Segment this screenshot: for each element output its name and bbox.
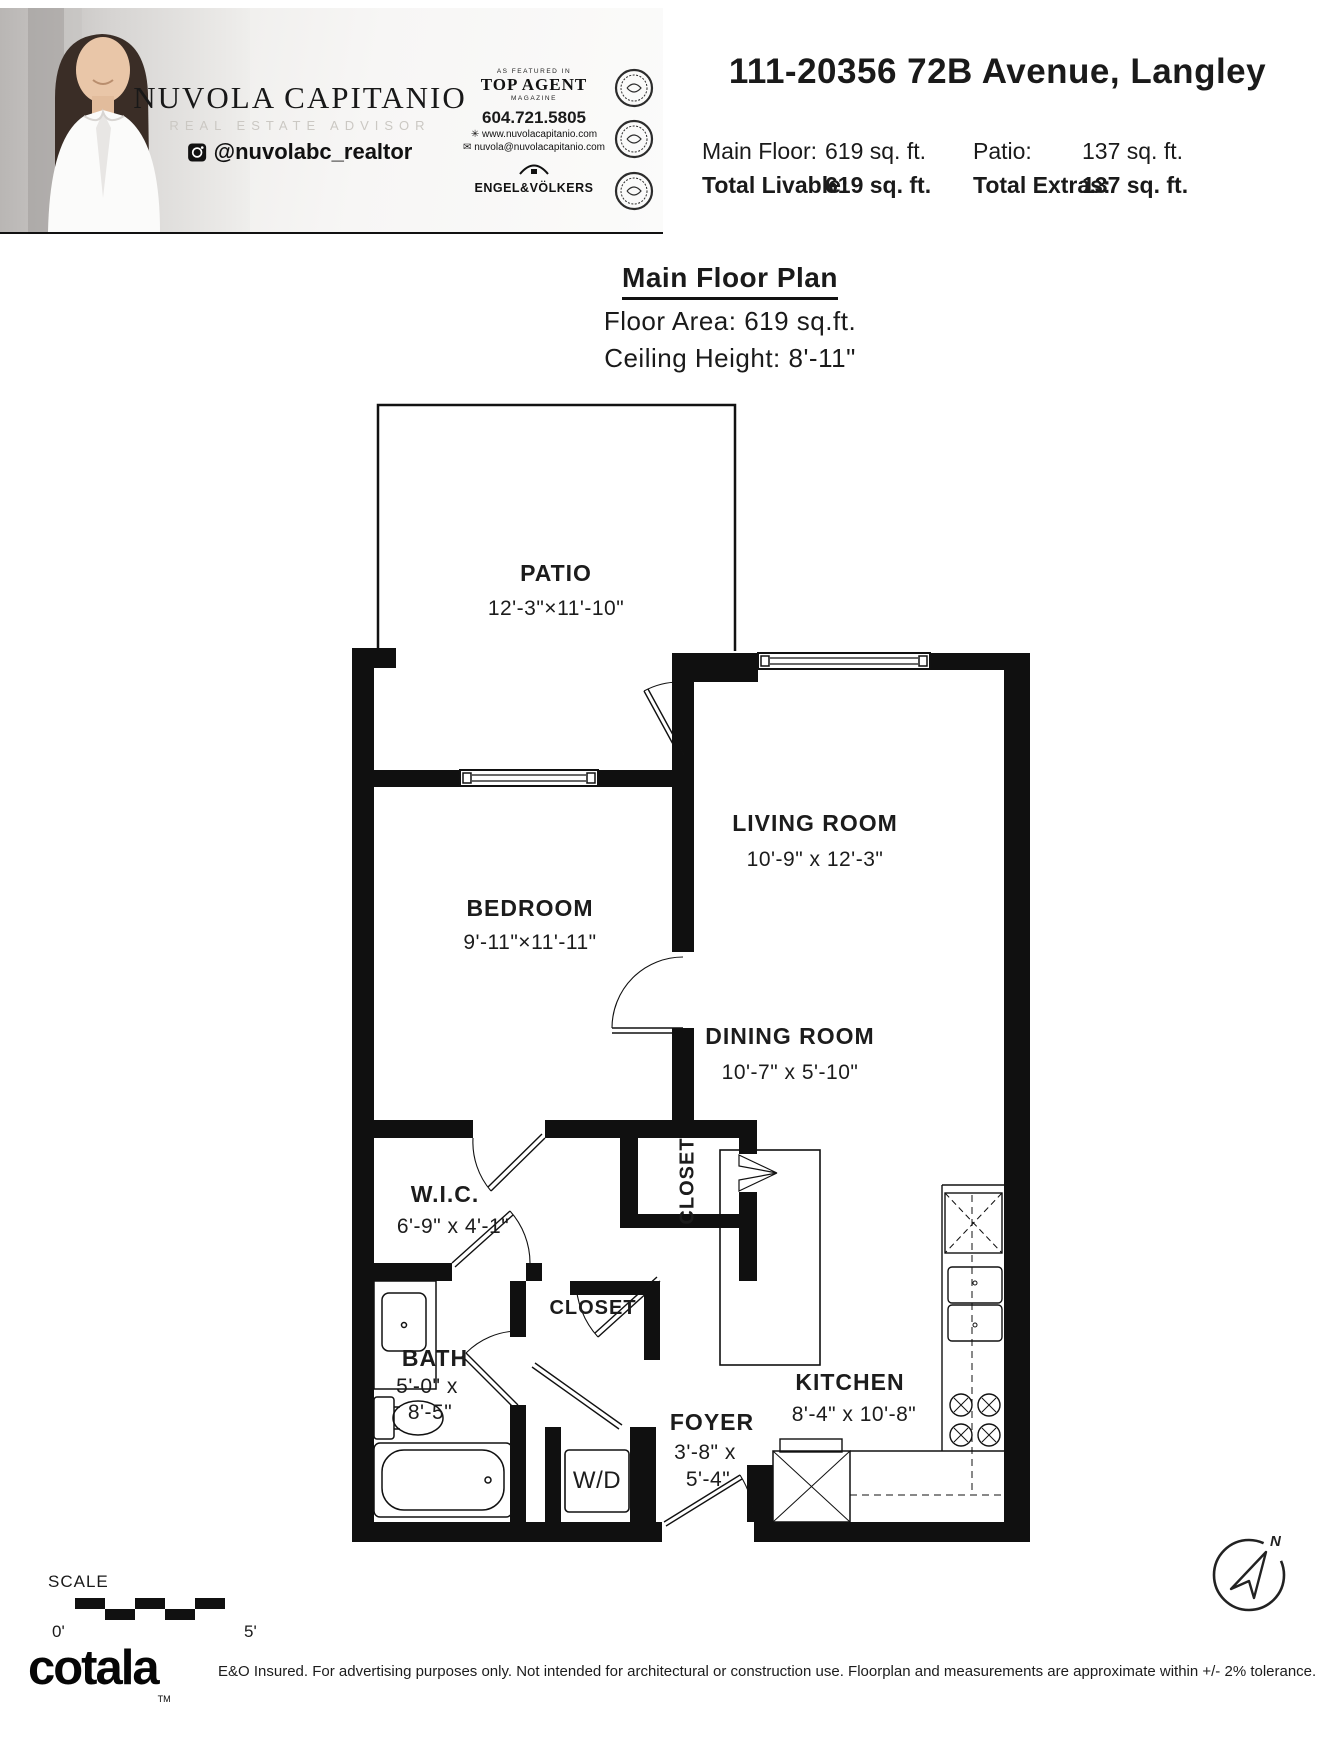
bath-fixtures [374,1281,512,1517]
badge-top-text: AS FEATURED IN [455,68,613,75]
oven-knob-2 [973,1323,977,1327]
room-label-patio: PATIO [520,560,592,587]
north-compass: N [1204,1528,1296,1620]
oven-knob-1 [973,1281,977,1285]
stat-total-extras-value: 137 sq. ft. [1082,172,1188,199]
stat-main-floor-value: 619 sq. ft. [825,138,926,165]
toilet-tank [374,1397,394,1439]
brokerage-name: ENGEL&VÖLKERS [455,181,613,195]
fridge-x [945,1193,1002,1253]
floor-plan: PATIO 12'-3"×11'-10" LIVING ROOM 10'-9" … [330,395,1030,1555]
agent-banner: NUVOLA CAPITANIO REAL ESTATE ADVISOR @nu… [0,8,663,234]
room-dims-dining: 10'-7" x 5'-10" [722,1061,859,1085]
closet1-bifold-door [739,1155,777,1191]
trademark-symbol: TM [158,1694,171,1704]
room-label-kitchen: KITCHEN [795,1369,904,1396]
agent-phone: 604.721.5805 [455,108,613,128]
bath-door-leaf [462,1353,518,1408]
stat-patio-value: 137 sq. ft. [1082,138,1183,165]
engel-volkers-icon [517,163,551,176]
agent-instagram-handle: @nuvolabc_realtor [214,139,413,165]
room-label-dining: DINING ROOM [705,1023,874,1050]
floor-area-line: Floor Area: 619 sq.ft. [520,306,940,337]
globe-icon: ✳ [471,129,479,140]
room-label-closet1: CLOSET [677,1137,700,1224]
plan-title: Main Floor Plan [622,262,838,300]
property-address: 111-20356 72B Avenue, Langley [655,52,1340,92]
room-dims-bedroom: 9'-11"×11'-11" [463,931,596,955]
room-label-wd: W/D [573,1467,621,1495]
agent-website: ✳ www.nuvolacapitanio.com [455,129,613,141]
room-dims-kitchen: 8'-4" x 10'-8" [792,1403,916,1427]
hall-wic-door-arc [510,1211,530,1263]
agent-name: NUVOLA CAPITANIO [133,80,466,116]
agent-email: ✉ nuvola@nuvolacapitanio.com [455,142,613,154]
walls [352,648,1030,1542]
room-label-foyer: FOYER [670,1409,754,1436]
top-agent-badge: TOP AGENT [455,75,613,95]
room-label-bath: BATH [402,1345,468,1372]
contact-block: AS FEATURED IN TOP AGENT MAGAZINE 604.72… [455,68,613,196]
scale-end: 5' [244,1622,257,1642]
disclaimer-text: E&O Insured. For advertising purposes on… [218,1663,1333,1680]
window-living [758,653,930,669]
upper-cabinet-dashed [850,1195,1004,1495]
wic-door-leaf [488,1134,545,1191]
window-bedroom [460,770,598,786]
agent-instagram: @nuvolabc_realtor [188,139,413,165]
room-dims-bath-1: 5'-0" x [396,1375,458,1399]
hall-door-leaf [532,1363,622,1429]
stat-patio-label: Patio: [973,138,1032,165]
north-arrow-icon [1231,1552,1266,1598]
agent-role: REAL ESTATE ADVISOR [169,118,430,133]
room-dims-wic: 6'-9" x 4'-1" [397,1215,509,1239]
email-icon: ✉ [463,142,471,153]
room-label-wic: W.I.C. [411,1181,480,1208]
badge-bottom-text: MAGAZINE [455,95,613,102]
doors [452,682,777,1526]
flyer-page: NUVOLA CAPITANIO REAL ESTATE ADVISOR @nu… [0,0,1344,1753]
award-seal-icons [608,66,660,216]
scale-label: SCALE [48,1572,268,1592]
room-dims-patio: 12'-3"×11'-10" [488,597,624,621]
room-label-living: LIVING ROOM [732,810,898,837]
room-label-closet2: CLOSET [549,1297,636,1320]
bedroom-door-arc [612,957,683,1028]
room-label-bedroom: BEDROOM [466,895,593,922]
ceiling-height-line: Ceiling Height: 8'-11" [520,343,940,374]
stove [950,1394,1000,1446]
tub-drain [485,1477,491,1483]
title-block: Main Floor Plan Floor Area: 619 sq.ft. C… [520,262,940,374]
sink-faucet [402,1323,407,1328]
room-dims-foyer-2: 5'-4" [686,1468,730,1492]
sink-cabinet-x [773,1451,850,1522]
compass-n-label: N [1270,1533,1282,1550]
stat-total-livable-value: 619 sq. ft. [825,172,931,199]
instagram-icon [188,143,207,162]
scale-start: 0' [52,1622,65,1642]
cotala-logo: cotalaTM [28,1640,171,1704]
kitchen-island [720,1150,820,1365]
room-dims-bath-2: 8'-5" [408,1401,452,1425]
room-dims-living: 10'-9" x 12'-3" [747,848,884,872]
brokerage-logo: ENGEL&VÖLKERS [455,163,613,196]
stat-main-floor-label: Main Floor: [702,138,817,165]
scale-checker-bar [75,1598,225,1620]
room-dims-foyer-1: 3'-8" x [674,1441,736,1465]
kitchen-sink [780,1439,842,1452]
